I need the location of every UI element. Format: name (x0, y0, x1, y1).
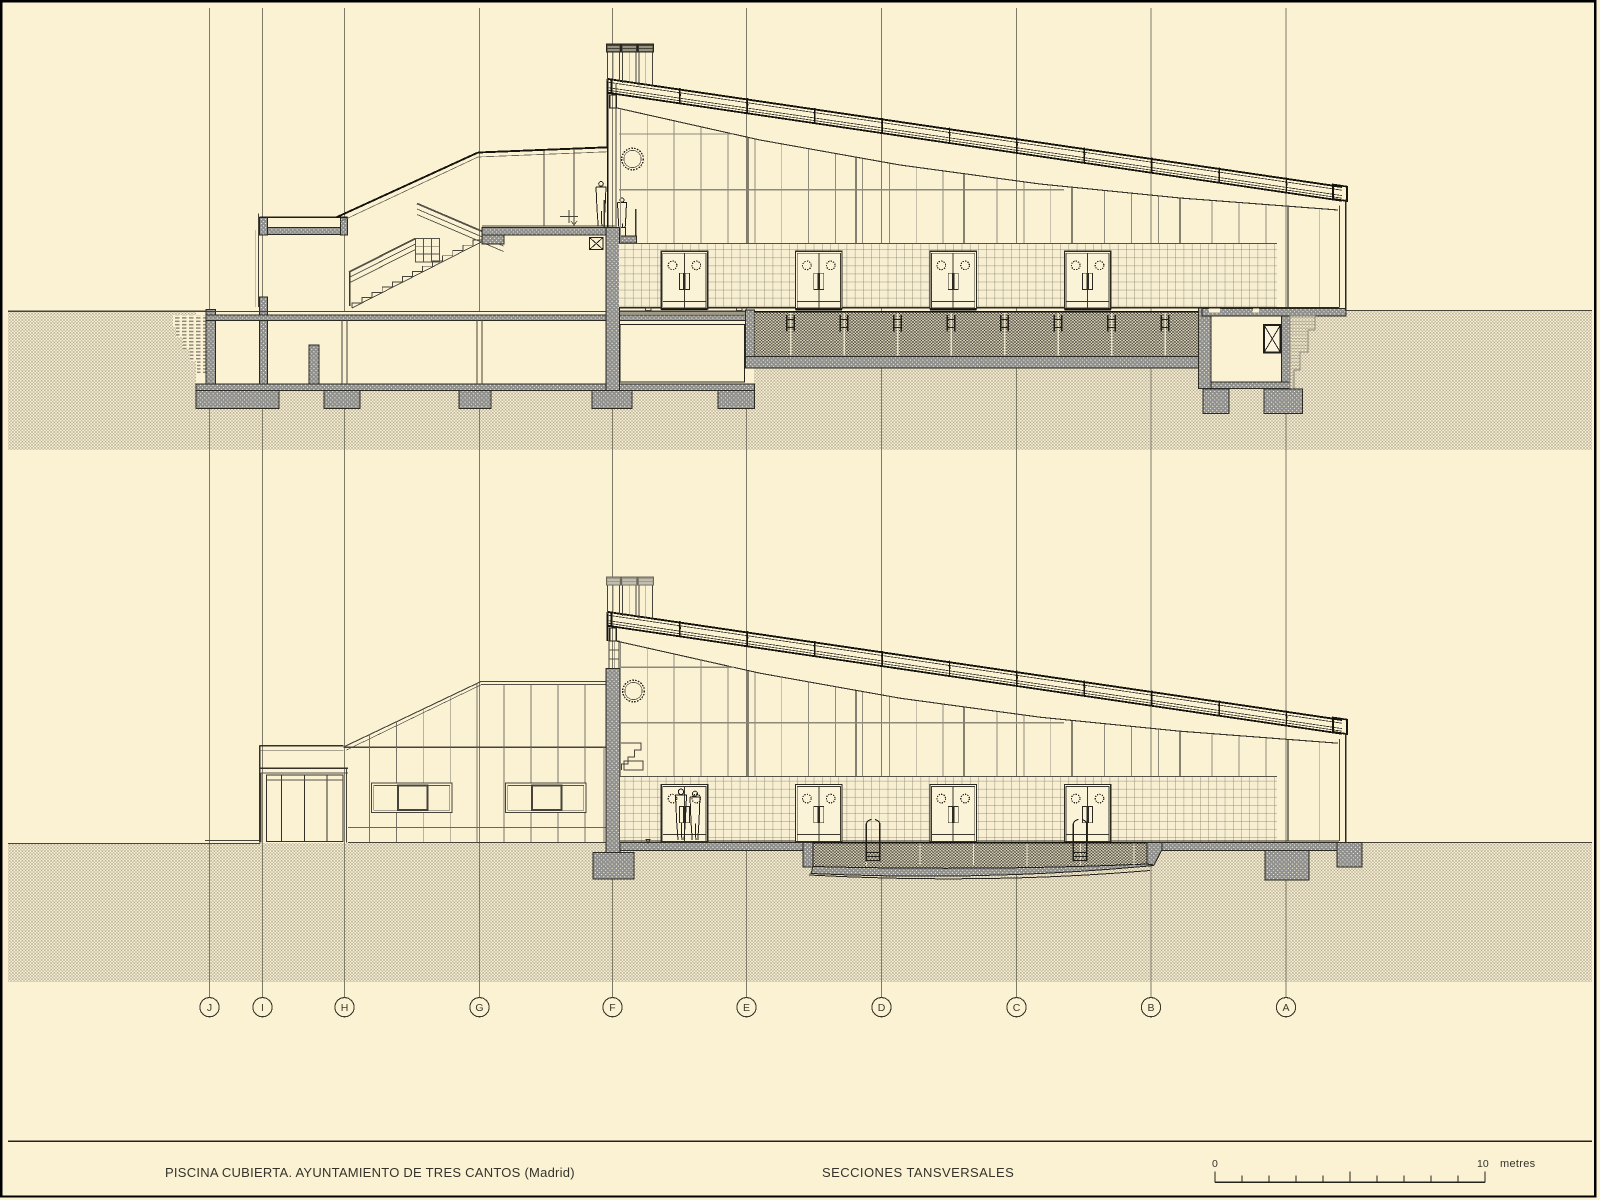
svg-text:B: B (1147, 1002, 1154, 1014)
svg-text:H: H (341, 1002, 349, 1014)
svg-text:G: G (475, 1002, 483, 1014)
svg-text:metres: metres (1500, 1158, 1536, 1170)
svg-text:I: I (261, 1002, 264, 1014)
svg-text:E: E (743, 1002, 750, 1014)
svg-text:A: A (1282, 1002, 1289, 1014)
svg-text:0: 0 (1212, 1158, 1218, 1170)
svg-text:C: C (1013, 1002, 1021, 1014)
svg-text:SECCIONES TANSVERSALES: SECCIONES TANSVERSALES (822, 1165, 1014, 1180)
svg-text:PISCINA CUBIERTA. AYUNTAMIENTO: PISCINA CUBIERTA. AYUNTAMIENTO DE TRES C… (165, 1165, 575, 1180)
svg-text:J: J (207, 1002, 212, 1014)
svg-text:D: D (878, 1002, 886, 1014)
svg-text:F: F (609, 1002, 615, 1014)
svg-text:10: 10 (1477, 1158, 1489, 1170)
